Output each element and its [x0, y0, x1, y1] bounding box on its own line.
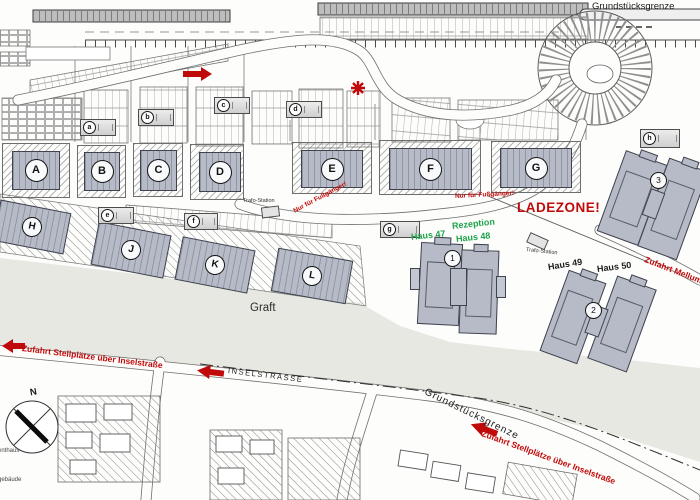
building-F-label: F [419, 158, 442, 181]
numbered-building-1: 1 [444, 250, 461, 267]
haus-48-side-stub [496, 276, 506, 298]
compass-rose [6, 401, 58, 453]
building-E: E [301, 150, 363, 188]
unit-a-label: a [83, 121, 96, 134]
numbered-building-3: 3 [650, 172, 667, 189]
building-J-label: J [119, 238, 142, 261]
ladezone-label: LADEZONE! [517, 200, 600, 215]
haus-47-48-connector [450, 268, 467, 306]
unit-f: f [184, 213, 218, 230]
building-K-label: K [203, 253, 226, 276]
building-C: C [140, 150, 177, 191]
building-E-label: E [321, 158, 344, 181]
unit-d: d [286, 101, 322, 118]
unit-h: h [640, 129, 680, 148]
building-F: F [389, 148, 472, 190]
building-C-label: C [147, 159, 170, 182]
unit-a: a [80, 119, 116, 136]
graft-label: Graft [250, 302, 276, 314]
building-H-label: H [20, 215, 43, 238]
unit-e-label: e [101, 209, 114, 222]
building-A: A [12, 151, 60, 190]
unit-g-label: g [383, 223, 396, 236]
edge-label-lower: gebäude [0, 477, 21, 483]
unit-h-label: h [643, 132, 656, 145]
unit-c: c [214, 97, 250, 114]
building-B: B [84, 152, 120, 191]
haus-47-side-stub [410, 268, 420, 290]
numbered-building-2: 2 [585, 302, 602, 319]
unit-b: b [138, 109, 174, 126]
building-A-label: A [25, 159, 48, 182]
building-L-label: L [300, 264, 323, 287]
arrow-east-top [183, 67, 212, 81]
unit-f-label: f [187, 215, 200, 228]
unit-e: e [98, 207, 134, 224]
site-plan: A B C D E F G H J K L 1 2 [0, 0, 700, 500]
unit-d-label: d [289, 103, 302, 116]
red-star-marker [351, 81, 365, 95]
boundary-label-top: Grundstücksgrenze [592, 1, 674, 12]
building-G: G [500, 148, 572, 188]
compass-north-label: N [29, 386, 38, 398]
building-D-label: D [209, 161, 232, 184]
unit-b-label: b [141, 111, 154, 124]
trafo-west-label: Trafo-Station [243, 198, 275, 204]
edge-label-upper: enthaus [0, 448, 19, 454]
building-G-label: G [525, 157, 548, 180]
unit-c-label: c [217, 99, 230, 112]
building-D: D [199, 152, 241, 192]
building-B-label: B [91, 160, 114, 183]
